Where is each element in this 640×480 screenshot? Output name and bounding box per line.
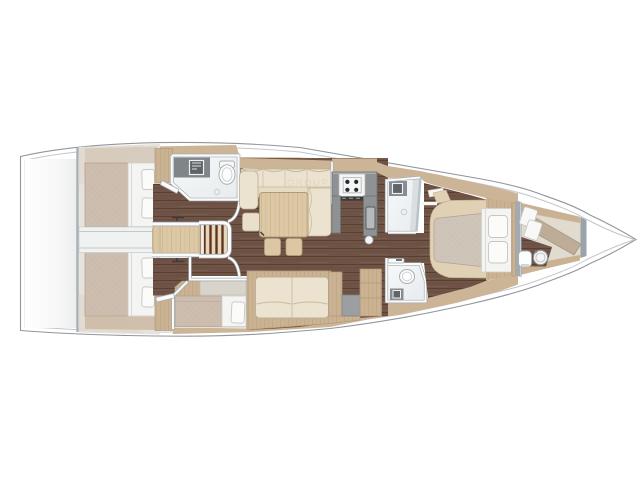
svg-text:GROUP 1: GROUP 1	[287, 178, 340, 189]
